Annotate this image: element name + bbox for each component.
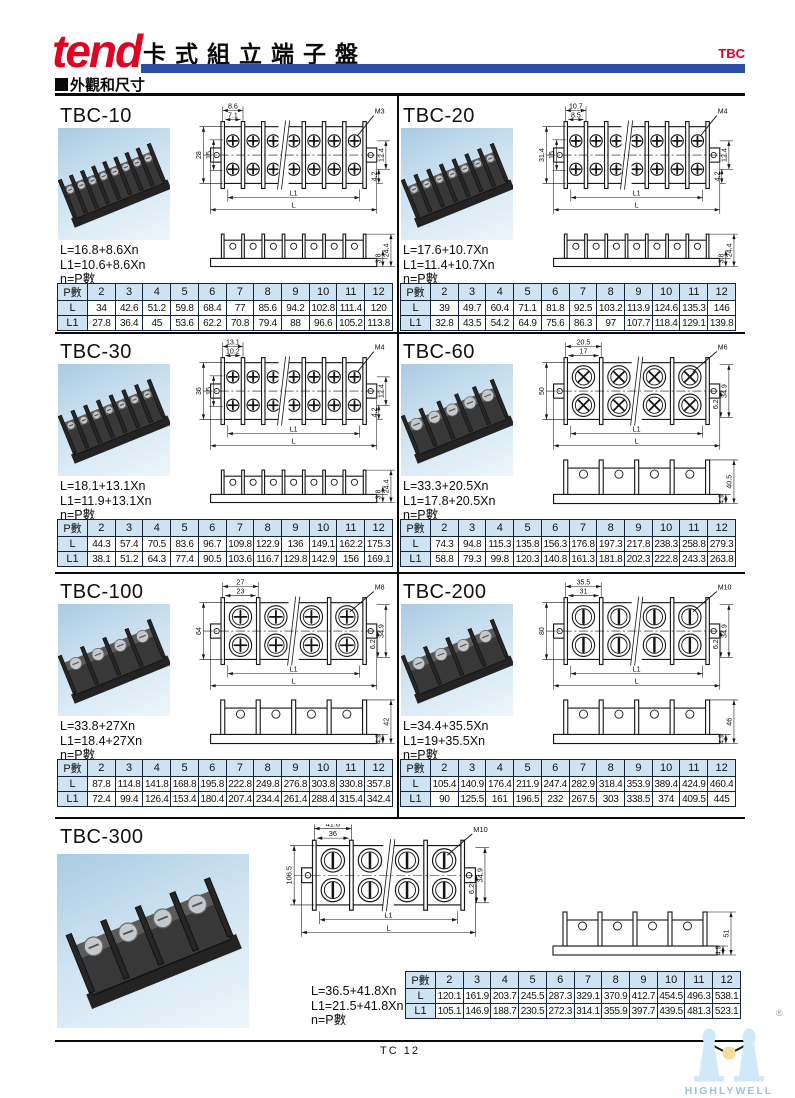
table-cell: 176.8 — [569, 537, 597, 552]
table-cell: 538.1 — [713, 989, 741, 1004]
table-header-cell: 9 — [282, 520, 310, 537]
dim-label: 20.5 — [577, 338, 591, 346]
table-header-cell: 5 — [514, 760, 542, 777]
table-cell: 102.8 — [309, 301, 337, 316]
product-photo — [58, 364, 170, 476]
table-cell: 59.8 — [171, 301, 199, 316]
dim-label: 7.1 — [228, 112, 238, 120]
dim-label: L1 — [633, 666, 641, 674]
table-cell: 109.8 — [226, 537, 254, 552]
dim-label: 6.2 — [712, 639, 720, 649]
table-cell: 129.8 — [282, 552, 310, 567]
product-photo-illustration — [401, 128, 513, 240]
table-cell: 141.8 — [143, 777, 171, 792]
table-cell: 353.9 — [625, 777, 653, 792]
table-row-label: L1 — [58, 792, 88, 807]
table-cell: 176.4 — [486, 777, 514, 792]
table-cell: 342.4 — [365, 792, 393, 807]
divider-bottom — [55, 1040, 745, 1042]
dim-label: 15 — [205, 387, 213, 395]
table-cell: 397.7 — [630, 1004, 658, 1019]
table-header-cell: P數 — [401, 520, 431, 537]
table-header-cell: 12 — [708, 760, 736, 777]
dim-label: 106.5 — [285, 866, 294, 885]
table-header-cell: 8 — [602, 972, 630, 989]
table-cell: 238.3 — [652, 537, 680, 552]
watermark-text: HIGHLYWELL — [685, 1085, 773, 1097]
table-header-cell: 5 — [171, 760, 199, 777]
table-header-cell: 8 — [597, 760, 625, 777]
formula-line: L=17.6+10.7Xn — [403, 243, 495, 258]
dim-label: 24.4 — [382, 479, 390, 493]
formula-line: L=36.5+41.8Xn — [311, 984, 403, 999]
dim-label: L — [635, 202, 639, 210]
table-header-cell: 5 — [514, 520, 542, 537]
technical-drawing: 27236434.96.2L1LM84.942 — [167, 576, 395, 754]
section-tbc-300: TBC-30041.836106.534.96.2L1LM104.951L=36… — [55, 818, 745, 1040]
table-header-cell: 3 — [458, 760, 486, 777]
table-cell: 62.2 — [198, 316, 226, 331]
product-photo — [58, 128, 170, 240]
dim-label: 17 — [580, 348, 588, 356]
table-header-cell: 9 — [282, 760, 310, 777]
table-cell: 120 — [365, 301, 393, 316]
table-header-cell: 4 — [486, 520, 514, 537]
table-cell: 355.9 — [602, 1004, 630, 1019]
section-tbc-60: TBC-6020.5175034.96.2L1LM64.940.5L=33.3+… — [398, 333, 745, 572]
table-cell: 125.5 — [458, 792, 486, 807]
formula-line: n=P數 — [311, 1013, 403, 1028]
table-header-cell: 3 — [115, 520, 143, 537]
table-row-label: L — [58, 301, 88, 316]
table-header-cell: P數 — [401, 284, 431, 301]
table-cell: 39 — [431, 301, 459, 316]
formula-line: L1=11.9+13.1Xn — [60, 494, 152, 509]
dim-label: 36 — [195, 387, 203, 395]
table-cell: 203.7 — [491, 989, 519, 1004]
table-cell: 51.2 — [115, 552, 143, 567]
table-cell: 445 — [708, 792, 736, 807]
table-header-cell: 8 — [597, 284, 625, 301]
table-row-label: L1 — [58, 552, 88, 567]
product-photo-illustration — [401, 604, 513, 716]
table-header-cell: 3 — [115, 760, 143, 777]
product-photo-illustration — [58, 128, 170, 240]
table-header-cell: 11 — [680, 760, 708, 777]
dim-label: 35.5 — [577, 578, 591, 586]
table-cell: 44.3 — [88, 537, 116, 552]
table-cell: 146 — [708, 301, 736, 316]
formula-line: L=34.4+35.5Xn — [403, 719, 489, 734]
table-header-cell: 3 — [115, 284, 143, 301]
table-cell: 175.3 — [365, 537, 393, 552]
screw-size-label: M3 — [375, 108, 385, 116]
catalog-page: tend 卡式組立端子盤 TBC 外觀和尺寸 TBC-108.67.128151… — [0, 0, 795, 1098]
table-header-cell: 9 — [625, 284, 653, 301]
dim-label: 31 — [580, 588, 588, 596]
table-header-cell: 9 — [625, 520, 653, 537]
technical-drawing: 13.110.2361512.44.2L1LM43.824.4 — [167, 336, 395, 514]
formula-block: L=34.4+35.5XnL1=19+35.5Xnn=P數 — [403, 719, 489, 763]
dimension-table: P數23456789101112L3949.760.471.181.892.51… — [400, 283, 736, 331]
product-photo-illustration — [58, 364, 170, 476]
table-cell: 75.6 — [541, 316, 569, 331]
dimension-table: P數23456789101112L105.4140.9176.4211.9247… — [400, 759, 736, 807]
table-row-label: L1 — [401, 316, 431, 331]
product-photo — [58, 604, 170, 716]
table-cell: 329.1 — [574, 989, 602, 1004]
table-cell: 43.5 — [458, 316, 486, 331]
screw-size-label: M4 — [718, 108, 728, 116]
table-cell: 161 — [486, 792, 514, 807]
table-header-cell: P數 — [406, 972, 436, 989]
table-cell: 103.2 — [597, 301, 625, 316]
formula-line: L=33.8+27Xn — [60, 719, 142, 734]
table-header-cell: 3 — [458, 520, 486, 537]
dim-label: 41.8 — [326, 824, 340, 828]
table-cell: 282.9 — [569, 777, 597, 792]
table-cell: 374 — [652, 792, 680, 807]
dim-label: 4.9 — [717, 734, 725, 744]
table-cell: 162.2 — [337, 537, 365, 552]
section-heading-label: 外觀和尺寸 — [70, 77, 145, 94]
dimension-table: P數23456789101112L44.357.470.583.696.7109… — [57, 519, 393, 567]
table-row-label: L — [58, 537, 88, 552]
section-title: TBC-300 — [60, 826, 144, 849]
table-cell: 99.4 — [115, 792, 143, 807]
divider-header — [55, 93, 745, 96]
technical-drawing-svg: 41.836106.534.96.2L1LM104.951 — [251, 824, 743, 974]
table-header-cell: 12 — [713, 972, 741, 989]
table-cell: 96.6 — [309, 316, 337, 331]
section-tbc-30: TBC-3013.110.2361512.44.2L1LM43.824.4L=1… — [55, 333, 397, 572]
dim-label: 64 — [195, 627, 203, 635]
registered-mark: ® — [776, 1008, 783, 1018]
technical-drawing-svg: 10.78.531.41512.44.2L1LM43.824.4 — [510, 100, 738, 278]
formula-block: L=36.5+41.8XnL1=21.5+41.8Xnn=P數 — [311, 984, 403, 1028]
table-header-cell: 2 — [88, 760, 116, 777]
table-cell: 232 — [541, 792, 569, 807]
dim-label: L — [635, 438, 639, 446]
formula-line: L1=19+35.5Xn — [403, 734, 489, 749]
formula-line: L1=18.4+27Xn — [60, 734, 142, 749]
table-header-cell: P數 — [58, 284, 88, 301]
dim-label: 3.8 — [374, 253, 382, 263]
table-header-cell: 10 — [309, 760, 337, 777]
table-cell: 135.3 — [680, 301, 708, 316]
table-cell: 96.7 — [198, 537, 226, 552]
table-header-cell: 12 — [365, 760, 393, 777]
table-header-cell: 11 — [680, 284, 708, 301]
table-cell: 287.3 — [546, 989, 574, 1004]
table-cell: 85.6 — [254, 301, 282, 316]
table-cell: 74.3 — [431, 537, 459, 552]
table-cell: 79.4 — [254, 316, 282, 331]
formula-block: L=16.8+8.6XnL1=10.6+8.6Xnn=P數 — [60, 243, 146, 287]
section-title: TBC-30 — [60, 341, 132, 364]
dim-label: 28 — [195, 151, 203, 159]
dim-label: L1 — [290, 190, 298, 198]
table-header-cell: 10 — [657, 972, 685, 989]
table-cell: 222.8 — [226, 777, 254, 792]
dim-label: 4.2 — [370, 407, 378, 417]
dim-label: 8.5 — [571, 112, 581, 120]
table-cell: 169.1 — [365, 552, 393, 567]
dim-label: 40.5 — [725, 475, 733, 489]
table-row-label: L — [401, 537, 431, 552]
series-code: TBC — [718, 46, 745, 61]
table-cell: 276.8 — [282, 777, 310, 792]
formula-line: L=16.8+8.6Xn — [60, 243, 146, 258]
dim-label: 12.4 — [377, 148, 385, 162]
highlywell-watermark-logo: ® HIGHLYWELL — [676, 1004, 786, 1098]
table-cell: 196.5 — [514, 792, 542, 807]
table-cell: 126.4 — [143, 792, 171, 807]
table-cell: 460.4 — [708, 777, 736, 792]
table-cell: 77 — [226, 301, 254, 316]
table-cell: 261.4 — [282, 792, 310, 807]
section-title: TBC-100 — [60, 581, 144, 604]
technical-drawing-svg: 27236434.96.2L1LM84.942 — [167, 576, 395, 754]
table-cell: 58.8 — [431, 552, 459, 567]
product-photo — [401, 128, 513, 240]
table-cell: 114.8 — [115, 777, 143, 792]
table-cell: 140.9 — [458, 777, 486, 792]
table-header-cell: 6 — [198, 520, 226, 537]
table-header-cell: 10 — [309, 520, 337, 537]
table-cell: 207.4 — [226, 792, 254, 807]
table-header-cell: 4 — [486, 284, 514, 301]
table-header-cell: 6 — [546, 972, 574, 989]
screw-size-label: M10 — [718, 584, 732, 592]
section-tbc-10: TBC-108.67.1281512.44.2L1LM33.824.4L=16.… — [55, 97, 397, 332]
table-cell: 370.9 — [602, 989, 630, 1004]
technical-drawing: 20.5175034.96.2L1LM64.940.5 — [510, 336, 738, 514]
table-header-cell: 2 — [436, 972, 464, 989]
table-cell: 409.5 — [680, 792, 708, 807]
table-cell: 64.9 — [514, 316, 542, 331]
formula-line: L1=10.6+8.6Xn — [60, 258, 146, 273]
formula-block: L=18.1+13.1XnL1=11.9+13.1Xnn=P數 — [60, 479, 152, 523]
header-accent-bar — [141, 64, 745, 73]
table-header-cell: 8 — [597, 520, 625, 537]
table-cell: 156 — [337, 552, 365, 567]
table-cell: 272.3 — [546, 1004, 574, 1019]
table-header-cell: 10 — [309, 284, 337, 301]
table-cell: 92.5 — [569, 301, 597, 316]
table-cell: 338.5 — [625, 792, 653, 807]
table-cell: 70.8 — [226, 316, 254, 331]
black-square-icon — [55, 78, 68, 91]
table-cell: 71.1 — [514, 301, 542, 316]
table-header-cell: 10 — [652, 284, 680, 301]
table-cell: 32.8 — [431, 316, 459, 331]
table-cell: 129.1 — [680, 316, 708, 331]
product-photo-illustration — [58, 604, 170, 716]
dim-label: 6.2 — [369, 639, 377, 649]
table-cell: 38.1 — [88, 552, 116, 567]
table-cell: 97 — [597, 316, 625, 331]
product-photo — [401, 604, 513, 716]
screw-size-label: M4 — [375, 344, 385, 352]
table-header-cell: 11 — [680, 520, 708, 537]
table-cell: 156.3 — [541, 537, 569, 552]
table-cell: 122.9 — [254, 537, 282, 552]
technical-drawing: 41.836106.534.96.2L1LM104.951 — [251, 824, 743, 974]
table-cell: 217.8 — [625, 537, 653, 552]
table-header-cell: P數 — [58, 520, 88, 537]
screw-size-label: M6 — [718, 344, 728, 352]
table-header-cell: 5 — [171, 520, 199, 537]
table-cell: 34 — [88, 301, 116, 316]
table-cell: 389.4 — [652, 777, 680, 792]
table-header-cell: 12 — [365, 284, 393, 301]
table-cell: 222.8 — [652, 552, 680, 567]
dim-label: 4.9 — [717, 494, 725, 504]
dim-label: 6.2 — [712, 399, 720, 409]
table-cell: 211.9 — [514, 777, 542, 792]
table-cell: 111.4 — [337, 301, 365, 316]
dimension-table: P數23456789101112L87.8114.8141.8168.8195.… — [57, 759, 393, 807]
table-header-cell: 2 — [88, 520, 116, 537]
table-header-cell: 7 — [569, 760, 597, 777]
technical-drawing: 35.5318034.96.2L1LM104.946 — [510, 576, 738, 754]
formula-line: L1=21.5+41.8Xn — [311, 999, 403, 1014]
table-header-cell: 4 — [143, 284, 171, 301]
table-cell: 87.8 — [88, 777, 116, 792]
technical-drawing-svg: 20.5175034.96.2L1LM64.940.5 — [510, 336, 738, 514]
technical-drawing-svg: 13.110.2361512.44.2L1LM43.824.4 — [167, 336, 395, 514]
dim-label: L1 — [633, 190, 641, 198]
table-header-cell: 6 — [541, 520, 569, 537]
dim-label: 4.2 — [370, 171, 378, 181]
table-cell: 315.4 — [337, 792, 365, 807]
section-tbc-100: TBC-10027236434.96.2L1LM84.942L=33.8+27X… — [55, 573, 397, 817]
table-cell: 247.4 — [541, 777, 569, 792]
dim-label: L1 — [633, 426, 641, 434]
dim-label: 4.2 — [713, 171, 721, 181]
table-cell: 288.4 — [309, 792, 337, 807]
table-header-cell: 10 — [652, 520, 680, 537]
table-cell: 120.3 — [514, 552, 542, 567]
dim-label: 23 — [237, 588, 245, 596]
table-header-cell: 9 — [625, 760, 653, 777]
table-cell: 180.4 — [198, 792, 226, 807]
table-cell: 136 — [282, 537, 310, 552]
dim-label: L — [292, 678, 296, 686]
table-cell: 412.7 — [630, 989, 658, 1004]
table-cell: 140.8 — [541, 552, 569, 567]
table-header-cell: 3 — [463, 972, 491, 989]
table-cell: 161.3 — [569, 552, 597, 567]
table-header-cell: 10 — [652, 760, 680, 777]
formula-block: L=33.3+20.5XnL1=17.8+20.5Xnn=P數 — [403, 479, 495, 523]
formula-line: L1=17.8+20.5Xn — [403, 494, 495, 509]
dim-label: 36 — [329, 829, 337, 838]
table-cell: 135.8 — [514, 537, 542, 552]
table-cell: 303 — [597, 792, 625, 807]
dim-label: 24.4 — [725, 243, 733, 257]
table-cell: 68.4 — [198, 301, 226, 316]
table-cell: 94.2 — [282, 301, 310, 316]
formula-block: L=33.8+27XnL1=18.4+27Xnn=P數 — [60, 719, 142, 763]
product-photo — [401, 364, 513, 476]
dim-label: 8.6 — [228, 102, 238, 110]
table-header-cell: 8 — [254, 520, 282, 537]
table-cell: 120.1 — [436, 989, 464, 1004]
table-cell: 357.8 — [365, 777, 393, 792]
watermark-dot — [723, 1047, 736, 1060]
dim-label: 4.9 — [716, 946, 723, 956]
table-header-cell: 12 — [708, 520, 736, 537]
table-cell: 424.9 — [680, 777, 708, 792]
table-header-cell: 5 — [519, 972, 547, 989]
table-header-cell: 7 — [574, 972, 602, 989]
table-cell: 258.8 — [680, 537, 708, 552]
product-photo — [57, 854, 249, 1028]
technical-drawing-svg: 8.67.1281512.44.2L1LM33.824.4 — [167, 100, 395, 278]
table-header-cell: 12 — [365, 520, 393, 537]
dim-label: 46 — [725, 718, 733, 726]
table-cell: 107.7 — [625, 316, 653, 331]
table-cell: 303.8 — [309, 777, 337, 792]
table-cell: 330.8 — [337, 777, 365, 792]
table-cell: 195.8 — [198, 777, 226, 792]
screw-size-label: M10 — [473, 825, 487, 834]
dim-label: 27 — [237, 578, 245, 586]
dim-label: 24.4 — [382, 243, 390, 257]
dim-label: 42 — [382, 718, 390, 726]
table-cell: 243.3 — [680, 552, 708, 567]
table-row-label: L — [401, 777, 431, 792]
dim-label: 12.4 — [377, 384, 385, 398]
table-cell: 99.8 — [486, 552, 514, 567]
table-cell: 116.7 — [254, 552, 282, 567]
table-cell: 64.3 — [143, 552, 171, 567]
table-cell: 90.5 — [198, 552, 226, 567]
table-cell: 70.5 — [143, 537, 171, 552]
table-cell: 279.3 — [708, 537, 736, 552]
dim-label: L — [635, 678, 639, 686]
product-photo-illustration — [57, 854, 249, 1028]
table-row-label: L1 — [58, 316, 88, 331]
table-cell: 94.8 — [458, 537, 486, 552]
table-cell: 454.5 — [657, 989, 685, 1004]
table-cell: 202.3 — [625, 552, 653, 567]
table-header-cell: 8 — [254, 760, 282, 777]
table-cell: 318.4 — [597, 777, 625, 792]
table-cell: 230.5 — [519, 1004, 547, 1019]
dim-label: L1 — [384, 911, 392, 920]
table-cell: 57.4 — [115, 537, 143, 552]
table-header-cell: 11 — [337, 520, 365, 537]
table-cell: 105.1 — [436, 1004, 464, 1019]
table-cell: 496.3 — [685, 989, 713, 1004]
table-header-cell: 11 — [685, 972, 713, 989]
section-tbc-20: TBC-2010.78.531.41512.44.2L1LM43.824.4L=… — [398, 97, 745, 332]
section-heading: 外觀和尺寸 — [55, 74, 145, 95]
dim-label: L1 — [290, 426, 298, 434]
product-photo-illustration — [401, 364, 513, 476]
table-cell: 197.3 — [597, 537, 625, 552]
table-header-cell: 4 — [143, 760, 171, 777]
dim-label: 15 — [205, 151, 213, 159]
dim-label: 51 — [724, 930, 731, 938]
table-header-cell: 2 — [88, 284, 116, 301]
table-header-cell: 8 — [254, 284, 282, 301]
section-title: TBC-20 — [403, 105, 475, 128]
dim-label: 10.2 — [226, 348, 240, 356]
